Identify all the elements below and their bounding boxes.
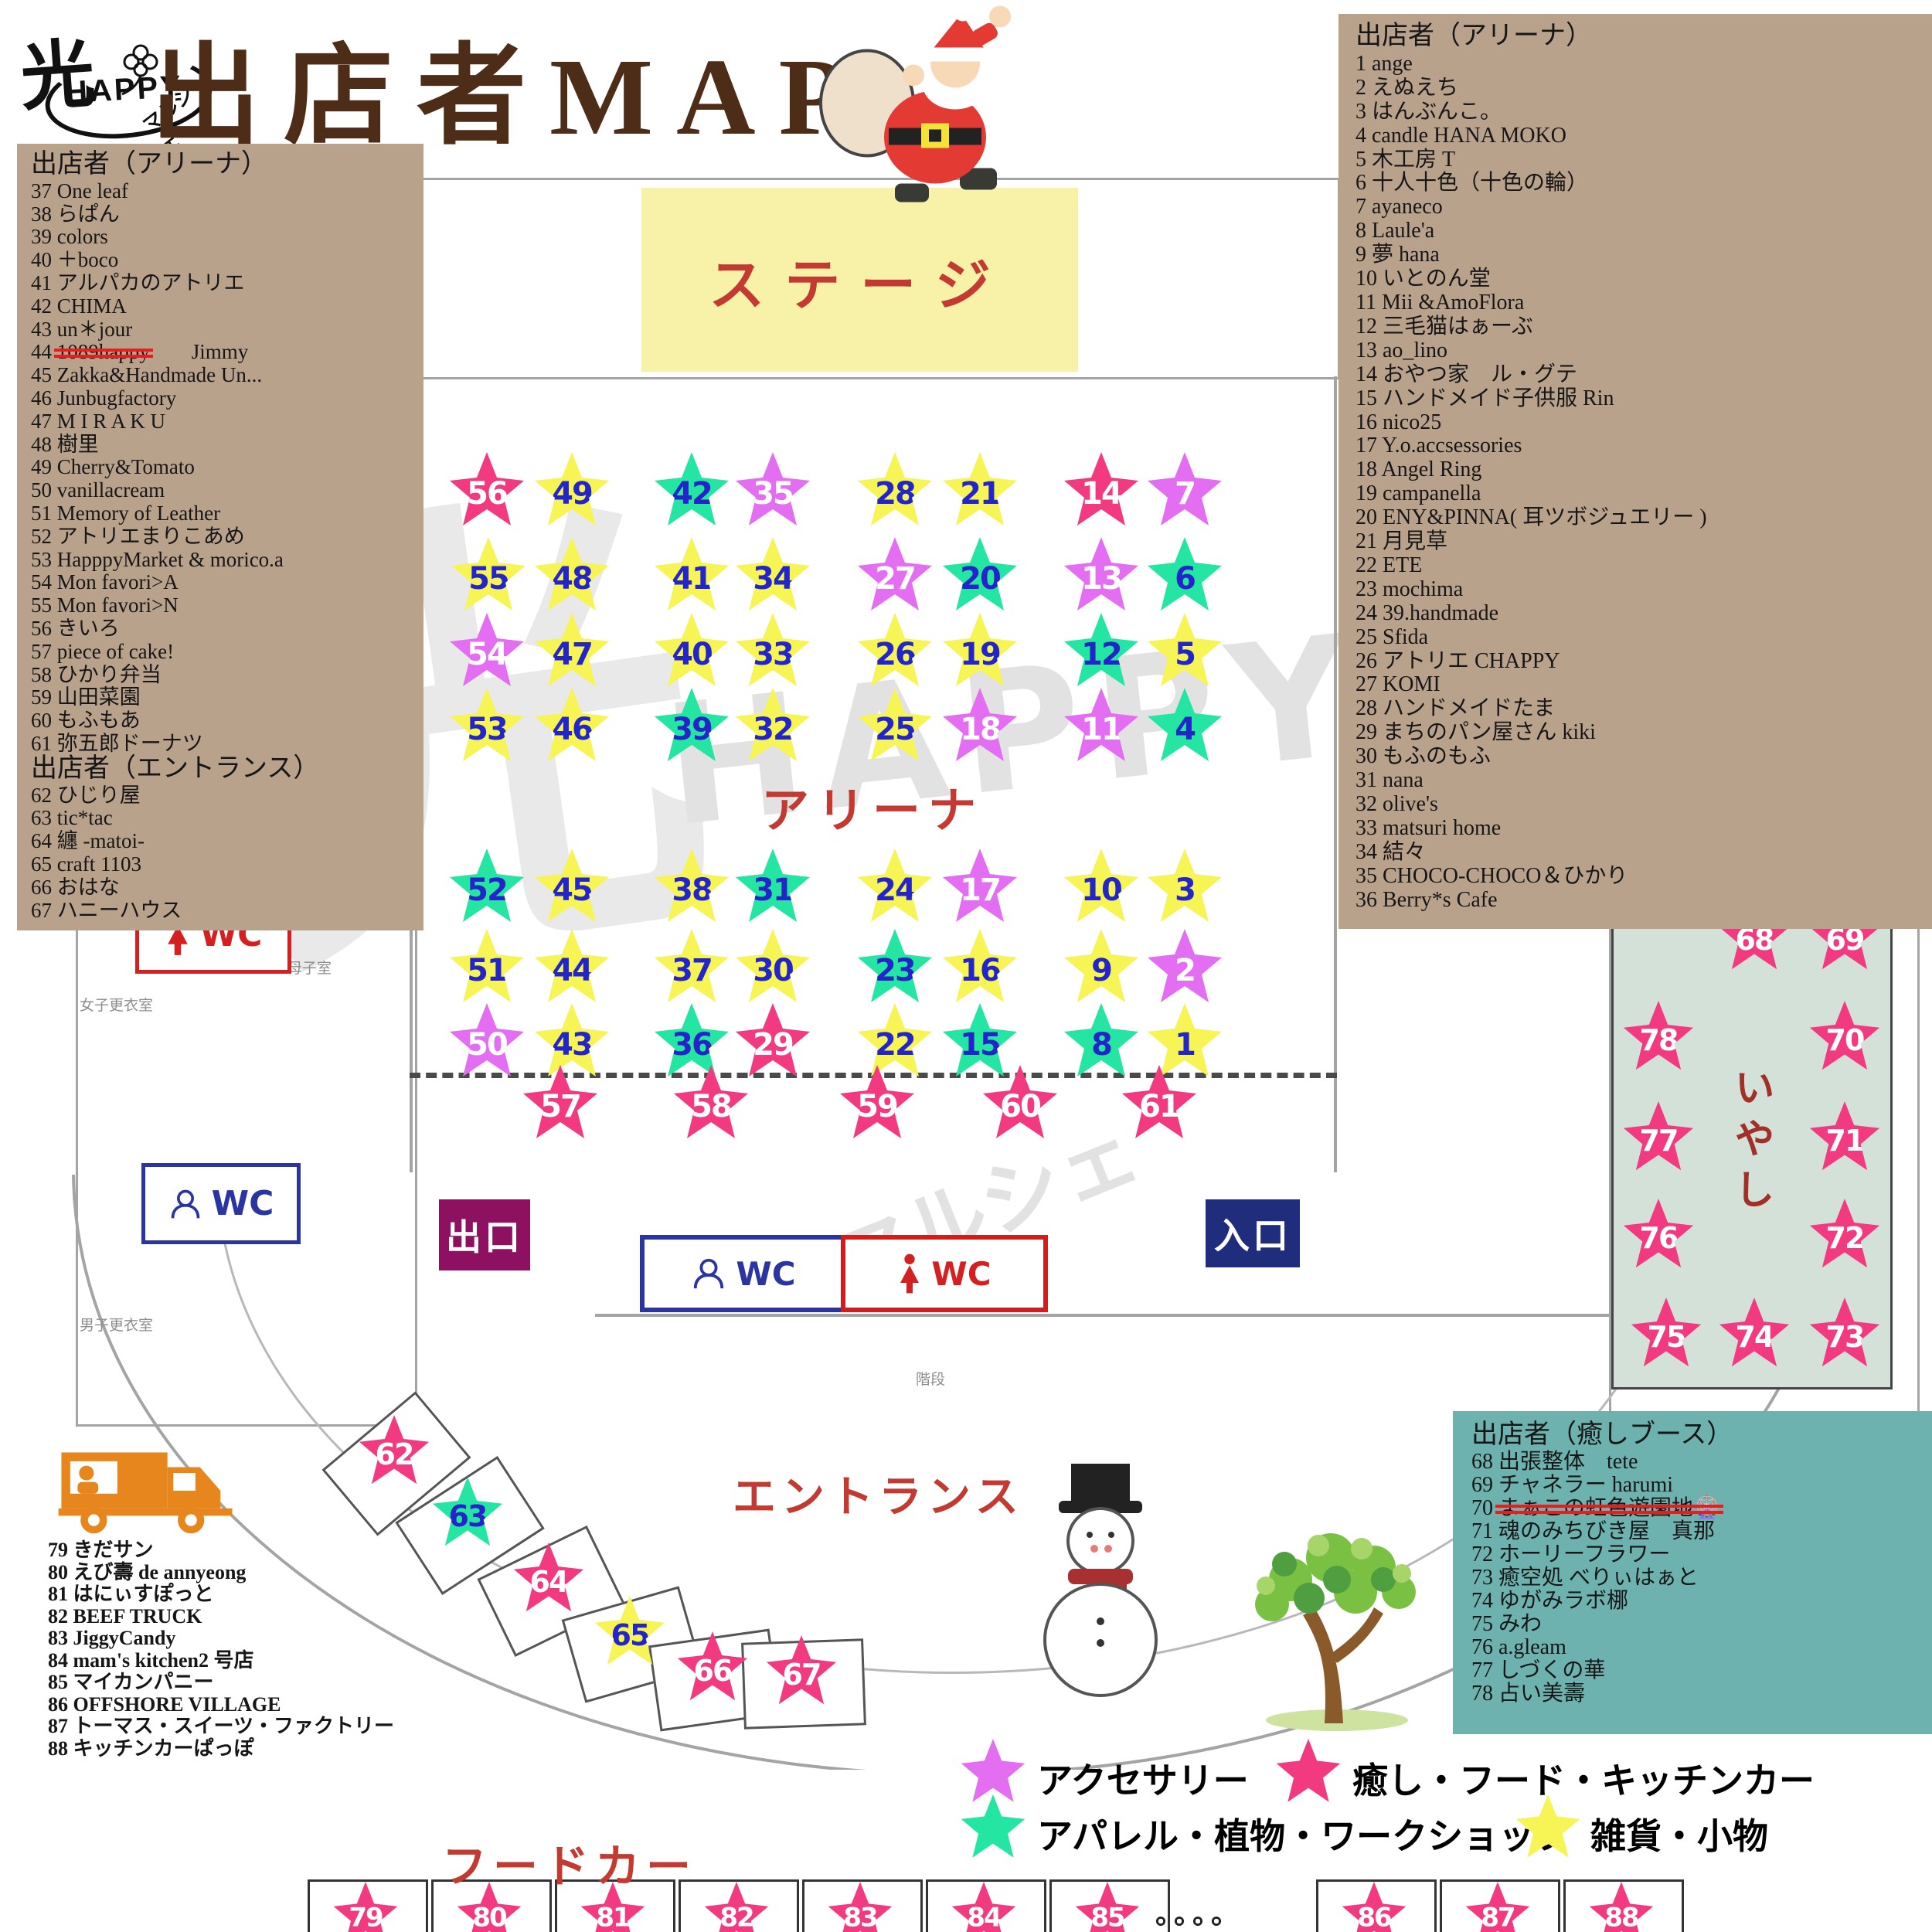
vendor-item-13: 13 ao_lino	[1355, 339, 1932, 363]
booth-star-31: 31	[734, 849, 811, 926]
booth-number: 75	[1648, 1322, 1685, 1352]
booth-number: 86	[1357, 1904, 1390, 1930]
booth-number: 50	[467, 1029, 507, 1060]
wc-women-center: WC	[841, 1235, 1048, 1312]
booth-number: 82	[719, 1904, 753, 1930]
wc-men-left: WC	[141, 1163, 301, 1244]
vendor-item-32: 32 olive's	[1355, 793, 1932, 817]
booth-number: 84	[967, 1904, 1000, 1930]
vendor-item-71: 71 魂のみちびき屋 真那	[1471, 1520, 1932, 1543]
vendor-item-52: 52 アトリエまりこあめ	[31, 526, 423, 549]
vendor-item-10: 10 いとのん堂	[1355, 267, 1932, 291]
booth-number: 51	[467, 955, 507, 986]
booth-star-7: 7	[1146, 452, 1223, 529]
vendor-item-46: 46 Junbugfactory	[31, 387, 423, 410]
legend-label-0: アクセサリー	[1037, 1753, 1249, 1804]
booth-number: 27	[875, 563, 915, 594]
booth-number: 69	[1826, 925, 1864, 954]
booth-number: 7	[1175, 478, 1195, 509]
vendor-item-56: 56 きいろ	[31, 617, 423, 641]
arena-label: アリーナ	[761, 771, 984, 841]
booth-star-23: 23	[856, 929, 934, 1006]
vendor-item-38: 38 らぱん	[31, 203, 423, 226]
booth-star-6: 6	[1146, 537, 1223, 614]
booth-number: 79	[349, 1904, 382, 1930]
santa-icon	[811, 4, 1059, 209]
vendor-panel-healing: 出店者（癒しブース）68 出張整体 tete69 チャネラー harumi70 …	[1453, 1411, 1932, 1734]
exit-label: 出口	[446, 1209, 523, 1260]
booth-number: 35	[753, 478, 793, 509]
booth-star-30: 30	[734, 929, 811, 1006]
wc-men-center: WC	[640, 1235, 847, 1312]
booth-number: 72	[1826, 1223, 1864, 1253]
vendor-item-25: 25 Sfida	[1355, 626, 1932, 650]
vendor-item-44: 44 1089happy Jimmy	[31, 341, 423, 364]
tree-icon	[1229, 1499, 1445, 1731]
vendor-item-21: 21 月見草	[1355, 530, 1932, 554]
vendor-item-24: 24 39.handmade	[1355, 602, 1932, 626]
vendor-item-37: 37 One leaf	[31, 180, 423, 203]
booth-star-17: 17	[941, 849, 1019, 926]
vendor-item-59: 59 山田菜園	[31, 686, 423, 709]
vendor-item-62: 62 ひじり屋	[31, 784, 423, 808]
vendor-item-30: 30 もふのもふ	[1355, 745, 1932, 769]
booth-star-2: 2	[1146, 929, 1223, 1006]
booth-number: 71	[1826, 1126, 1864, 1155]
vendor-item-2: 2 えぬえち	[1355, 77, 1932, 100]
vendor-item-17: 17 Y.o.accsessories	[1355, 434, 1932, 458]
booth-number: 43	[552, 1029, 592, 1060]
vendor-item-9: 9 夢 hana	[1355, 243, 1932, 267]
healing-header: 出店者（癒しブース）	[1471, 1423, 1932, 1447]
booth-number: 29	[753, 1029, 793, 1060]
vendor-item-86: 86 OFFSHORE VILLAGE	[48, 1694, 496, 1716]
vendor-item-12: 12 三毛猫はぁーぶ	[1355, 315, 1932, 339]
booth-star-29: 29	[734, 1003, 811, 1080]
booth-number: 56	[467, 478, 507, 509]
booth-star-3: 3	[1146, 849, 1223, 926]
booth-number: 52	[467, 875, 507, 906]
legend-label-1: 癒し・フード・キッチンカー	[1352, 1753, 1815, 1804]
booth-star-8: 8	[1063, 1003, 1140, 1080]
booth-star-13: 13	[1063, 537, 1140, 614]
vendor-item-82: 82 BEEF TRUCK	[48, 1606, 496, 1628]
booth-star-	[960, 1794, 1026, 1861]
booth-number: 40	[672, 639, 712, 670]
vendor-item-79: 79 きだサン	[48, 1539, 496, 1562]
booth-number: 5	[1175, 639, 1195, 670]
vendor-item-50: 50 vanillacream	[31, 479, 423, 502]
vendor-item-78: 78 占い美壽	[1471, 1682, 1932, 1706]
male-icon	[691, 1256, 726, 1291]
booth-number: 44	[552, 955, 592, 986]
booth-number: 80	[472, 1904, 505, 1930]
vendor-item-23: 23 mochima	[1355, 578, 1932, 602]
booth-number: 48	[552, 563, 592, 594]
healing-zone-label: いやし	[1722, 1066, 1780, 1219]
booth-number: 18	[960, 714, 1000, 745]
vendor-item-85: 85 マイカンパニー	[48, 1672, 496, 1694]
vendor-item-51: 51 Memory of Leather	[31, 502, 423, 526]
booth-number: 23	[875, 955, 915, 986]
page-title: 出店者MAP	[151, 6, 869, 165]
booth-number: 62	[376, 1440, 413, 1469]
booth-number: 55	[468, 563, 509, 594]
booth-number: 76	[1640, 1223, 1678, 1253]
vendor-item-76: 76 a.gleam	[1471, 1636, 1932, 1659]
booth-number: 74	[1736, 1322, 1774, 1352]
booth-number: 3	[1175, 875, 1195, 906]
vendor-item-83: 83 JiggyCandy	[48, 1628, 496, 1650]
vendor-item-5: 5 木工房 T	[1355, 148, 1932, 172]
vendor-item-47: 47 M I R A K U	[31, 410, 423, 434]
booth-number: 12	[1081, 639, 1121, 670]
vendor-item-35: 35 CHOCO-CHOCO＆ひかり	[1355, 865, 1932, 889]
arena_left-header: 出店者（アリーナ）	[31, 153, 423, 176]
vendor-item-70: 70 まぁこの虹色遊園地🎡	[1471, 1497, 1932, 1520]
vendor-item-8: 8 Laule'a	[1355, 219, 1932, 243]
booth-number: 38	[672, 875, 712, 906]
stall-row-dots: 。。。。	[1155, 1892, 1243, 1932]
booth-number: 66	[694, 1656, 732, 1685]
booth-number: 41	[672, 563, 712, 594]
booth-number: 31	[753, 875, 793, 906]
vendor-item-20: 20 ENY&PINNA( 耳ツボジュエリー )	[1355, 506, 1932, 530]
booth-number: 39	[672, 714, 712, 745]
wc-label: WC	[212, 1184, 274, 1223]
booth-number: 49	[552, 478, 592, 509]
entrance-label: エントランス	[733, 1462, 1024, 1525]
booth-star-9: 9	[1063, 929, 1140, 1006]
vendor-item-43: 43 un＊jour	[31, 318, 423, 342]
booth-star-16: 16	[941, 929, 1019, 1006]
vendor-item-68: 68 出張整体 tete	[1471, 1451, 1932, 1474]
booth-number: 20	[960, 563, 1000, 594]
booth-number: 16	[960, 955, 1000, 986]
vendor-item-60: 60 もふもあ	[31, 709, 423, 733]
booth-number: 4	[1175, 714, 1195, 745]
vendor-item-65: 65 craft 1103	[31, 853, 423, 876]
booth-number: 37	[672, 955, 712, 986]
booth-number: 17	[960, 875, 1000, 906]
booth-number: 10	[1081, 875, 1121, 906]
vendor-item-66: 66 おはな	[31, 876, 423, 900]
room-label-3: 階段	[916, 1368, 945, 1389]
booth-star-1: 1	[1146, 1003, 1223, 1080]
vendor-item-80: 80 えび壽 de annyeong	[48, 1562, 496, 1584]
booth-number: 22	[875, 1029, 915, 1060]
room-label-0: 女子更衣室	[80, 994, 153, 1015]
booth-star-28: 28	[856, 452, 934, 529]
booth-number: 33	[753, 639, 793, 670]
vendor-item-72: 72 ホーリーフラワー	[1471, 1543, 1932, 1566]
stage-label: ステージ	[709, 240, 1011, 321]
vendor-item-40: 40 ＋boco	[31, 249, 423, 272]
vendor-item-58: 58 ひかり弁当	[31, 664, 423, 687]
vendor-item-16: 16 nico25	[1355, 411, 1932, 435]
vendor-item-6: 6 十人十色（十色の輪）	[1355, 172, 1932, 196]
booth-number: 77	[1640, 1126, 1678, 1155]
booth-number: 70	[1826, 1026, 1864, 1055]
booth-number: 61	[1139, 1091, 1179, 1122]
booth-number: 15	[960, 1029, 1000, 1060]
vendor-item-54: 54 Mon favori>A	[31, 571, 423, 594]
vendor-item-11: 11 Mii &AmoFlora	[1355, 291, 1932, 315]
booth-number: 83	[843, 1904, 876, 1930]
booth-number: 54	[467, 639, 507, 670]
legend-label-2: アパレル・植物・ワークショップ	[1037, 1808, 1570, 1859]
booth-number: 60	[1000, 1091, 1040, 1122]
booth-star-27: 27	[856, 537, 934, 614]
vendor-item-36: 36 Berry*s Cafe	[1355, 889, 1932, 913]
vendor-item-55: 55 Mon favori>N	[31, 594, 423, 617]
booth-number: 73	[1826, 1322, 1864, 1352]
entry-box: 入口	[1206, 1199, 1300, 1267]
booth-number: 88	[1604, 1904, 1638, 1930]
booth-number: 11	[1081, 714, 1121, 745]
wc-label: WC	[736, 1255, 795, 1293]
booth-star-14: 14	[1063, 452, 1140, 529]
vendor-item-77: 77 しづくの華	[1471, 1659, 1932, 1682]
vendor-item-22: 22 ETE	[1355, 554, 1932, 578]
booth-number: 8	[1091, 1029, 1111, 1060]
booth-number: 19	[960, 639, 1000, 670]
booth-number: 26	[875, 639, 915, 670]
booth-star-15: 15	[941, 1003, 1019, 1080]
vendor-item-84: 84 mam's kitchen2 号店	[48, 1650, 496, 1672]
female-icon	[897, 1252, 922, 1295]
booth-number: 14	[1081, 478, 1121, 509]
booth-number: 68	[1736, 925, 1774, 954]
vendor-item-34: 34 結々	[1355, 841, 1932, 865]
booth-number: 36	[672, 1029, 712, 1060]
entry-label: 入口	[1214, 1208, 1291, 1259]
vendor-item-75: 75 みわ	[1471, 1613, 1932, 1636]
booth-number: 9	[1091, 955, 1111, 986]
booth-number: 64	[530, 1567, 568, 1597]
booth-number: 30	[753, 955, 793, 986]
vendor-item-7: 7 ayaneco	[1355, 196, 1932, 219]
vendor-item-1: 1 ange	[1355, 53, 1932, 77]
booth-number: 47	[552, 639, 592, 670]
vendor-item-39: 39 colors	[31, 226, 423, 249]
booth-star-36: 36	[653, 1003, 730, 1080]
foodcar-label: フードカー	[442, 1830, 697, 1895]
male-icon	[168, 1187, 202, 1221]
booth-number: 34	[753, 563, 793, 594]
vendor-item-53: 53 HapppyMarket & morico.a	[31, 549, 423, 572]
vendor-item-4: 4 candle HANA MOKO	[1355, 124, 1932, 148]
booth-number: 32	[753, 714, 793, 745]
vendor-item-15: 15 ハンドメイド子供服 Rin	[1355, 387, 1932, 411]
booth-star-10: 10	[1063, 849, 1140, 926]
vendor-item-67: 67 ハニーハウス	[31, 900, 423, 923]
struck-vendor-name: まぁこの虹色遊園地🎡	[1498, 1496, 1720, 1520]
booth-star-35: 35	[734, 452, 811, 529]
vendor-panel-foodtrucks: 79 きだサン80 えび壽 de annyeong81 はにぃすぽっと82 BE…	[48, 1539, 496, 1764]
vendor-item-64: 64 纏 -matoi-	[31, 830, 423, 853]
vendor-item-3: 3 はんぶんこ。	[1355, 100, 1932, 124]
booth-star-34: 34	[734, 537, 811, 614]
booth-number: 78	[1640, 1026, 1678, 1055]
struck-vendor-name: 1089happy	[57, 340, 150, 363]
booth-number: 46	[552, 714, 592, 745]
vendor-map-page: 光 HAPPY マルシェ 光 HAPPY マルシェ 出店者MAP	[0, 0, 1932, 1932]
booth-star-20: 20	[941, 537, 1019, 614]
booth-number: 24	[875, 875, 915, 906]
room-label-1: 母子室	[287, 957, 332, 978]
vendor-item-69: 69 チャネラー harumi	[1471, 1474, 1932, 1497]
booth-number: 53	[467, 714, 507, 745]
vendor-panel-arena-left: 出店者（アリーナ）37 One leaf38 らぱん39 colors40 ＋b…	[17, 144, 423, 930]
vendor-item-27: 27 KOMI	[1355, 673, 1932, 697]
floorplan-right-wall	[1334, 376, 1337, 1172]
exit-box: 出口	[439, 1199, 530, 1270]
vendor-item-31: 31 nana	[1355, 769, 1932, 793]
vendor-item-81: 81 はにぃすぽっと	[48, 1583, 496, 1606]
entrance_left-header: 出店者（エントランス）	[31, 757, 423, 781]
vendor-item-57: 57 piece of cake!	[31, 641, 423, 664]
booth-number: 59	[857, 1091, 897, 1122]
vendor-item-29: 29 まちのパン屋さん kiki	[1355, 721, 1932, 745]
vendor-item-88: 88 キッチンカーぱっぽ	[48, 1738, 496, 1760]
booth-number: 85	[1090, 1904, 1124, 1930]
vendor-item-28: 28 ハンドメイドたま	[1355, 697, 1932, 721]
booth-number: 1	[1175, 1029, 1195, 1060]
booth-number: 45	[552, 875, 592, 906]
vendor-item-42: 42 CHIMA	[31, 295, 423, 318]
food-truck-icon	[58, 1444, 236, 1538]
legend-label-3: 雑貨・小物	[1590, 1808, 1768, 1859]
booth-number: 87	[1481, 1904, 1514, 1930]
booth-number: 63	[449, 1502, 487, 1531]
vendor-item-48: 48 樹里	[31, 434, 423, 457]
booth-number: 57	[540, 1091, 580, 1122]
vendor-item-87: 87 トーマス・スイーツ・ファクトリー	[48, 1716, 496, 1738]
vendor-item-14: 14 おやつ家 ル・グテ	[1355, 363, 1932, 387]
booth-number: 21	[960, 478, 1000, 509]
vendor-item-73: 73 癒空処 べりぃはぁと	[1471, 1566, 1932, 1590]
room-label-2: 男子更衣室	[80, 1314, 153, 1335]
snowman-icon	[1028, 1461, 1175, 1700]
booth-number: 25	[875, 714, 915, 745]
booth-star-24: 24	[856, 849, 934, 926]
vendor-panel-arena-right: 出店者（アリーナ）1 ange2 えぬえち3 はんぶんこ。4 candle HA…	[1338, 14, 1932, 929]
booth-number: 65	[611, 1621, 649, 1650]
stage-area: ステージ	[641, 188, 1078, 372]
vendor-item-61: 61 弥五郎ドーナツ	[31, 733, 423, 756]
booth-star-22: 22	[856, 1003, 934, 1080]
arena_right-header: 出店者（アリーナ）	[1355, 25, 1932, 49]
vendor-item-18: 18 Angel Ring	[1355, 458, 1932, 482]
booth-number: 42	[672, 478, 712, 509]
booth-number: 6	[1175, 563, 1195, 594]
booth-number: 13	[1081, 563, 1121, 594]
vendor-item-26: 26 アトリエ CHAPPY	[1355, 650, 1932, 674]
vendor-item-49: 49 Cherry&Tomato	[31, 456, 423, 479]
vendor-item-19: 19 campanella	[1355, 482, 1932, 506]
booth-number: 2	[1175, 955, 1195, 986]
booth-number: 58	[691, 1091, 731, 1122]
booth-number: 28	[875, 478, 915, 509]
booth-number: 81	[596, 1904, 629, 1930]
vendor-item-45: 45 Zakka&Handmade Un...	[31, 364, 423, 387]
booth-star-21: 21	[941, 452, 1019, 529]
vendor-item-74: 74 ゆがみラボ梛	[1471, 1590, 1932, 1613]
vendor-item-41: 41 アルパカのアトリエ	[31, 272, 423, 295]
booth-number: 67	[783, 1660, 821, 1689]
vendor-item-33: 33 matsuri home	[1355, 817, 1932, 841]
vendor-item-63: 63 tic*tac	[31, 807, 423, 830]
wc-label: WC	[931, 1255, 991, 1293]
